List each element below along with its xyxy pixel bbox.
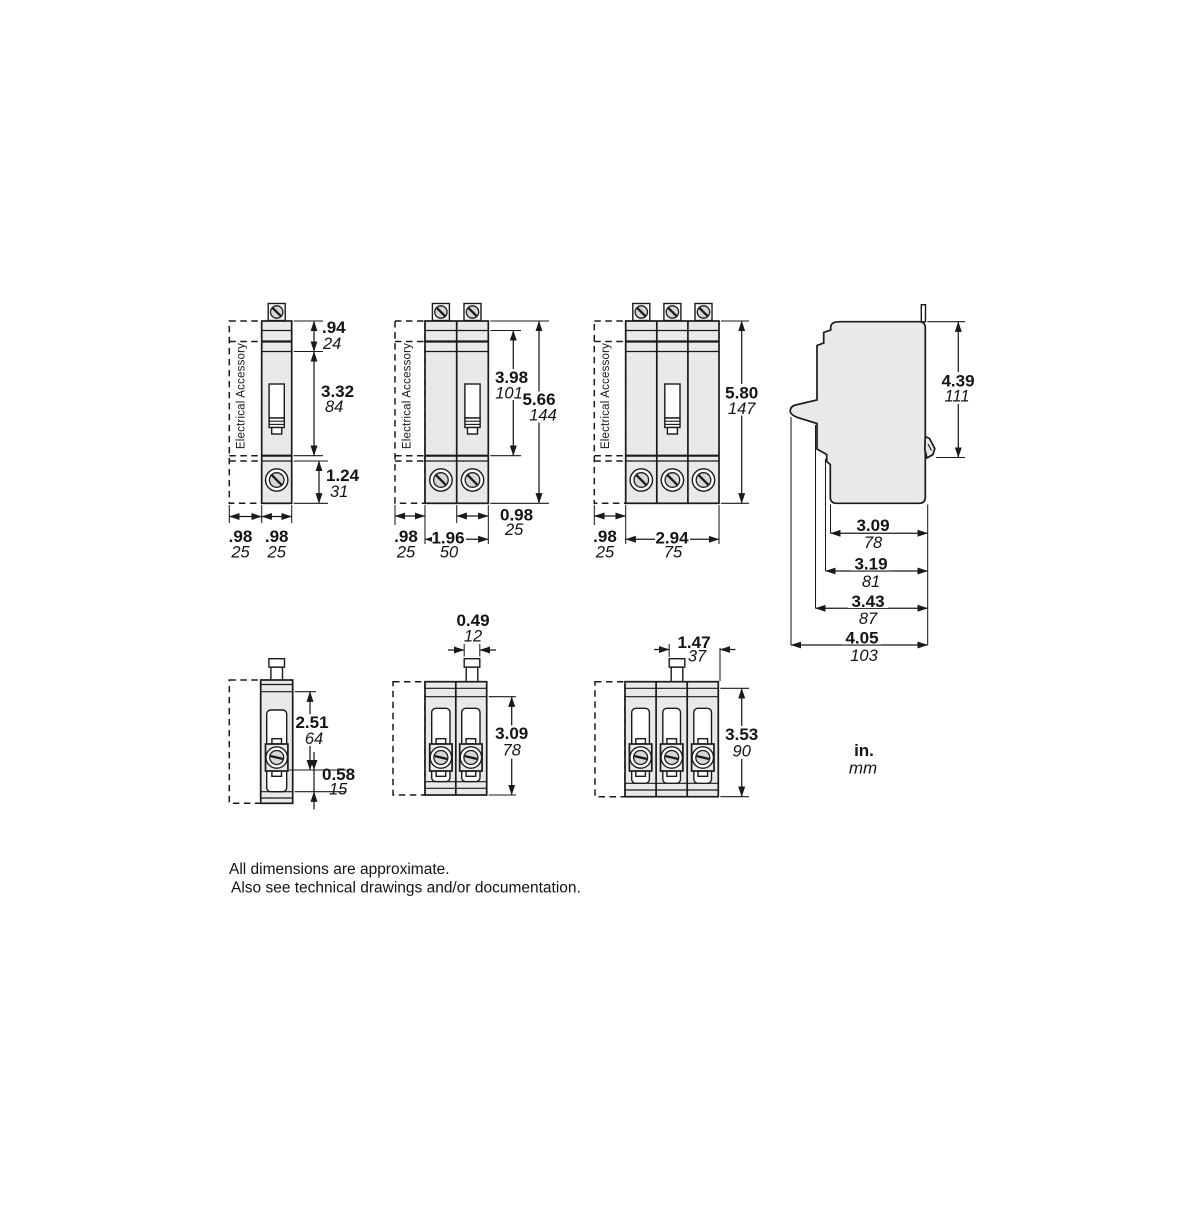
svg-text:75: 75	[664, 544, 683, 562]
side-view: 4.39 111 3.09 78 3.19 81 3.43 87 4.05 10…	[790, 305, 977, 665]
svg-text:25: 25	[267, 544, 287, 562]
svg-text:3.19: 3.19	[854, 555, 887, 574]
svg-text:15: 15	[329, 781, 348, 799]
svg-text:24: 24	[322, 335, 341, 353]
svg-text:78: 78	[864, 534, 883, 552]
dim-widths: 0.98 25 .98 25 1.96 50	[394, 505, 533, 562]
dim-handle-width: 1.47 37	[654, 633, 736, 681]
wire-lug	[629, 739, 651, 777]
dim-lug-height: 1.24 31	[294, 461, 360, 503]
svg-text:81: 81	[862, 573, 880, 591]
dim-total-height: 5.80 147	[721, 321, 761, 503]
terminal-screw	[268, 304, 285, 321]
breaker-dimension-drawing: Electrical Accessory .94 24 3.32 84 1.24	[0, 0, 1200, 1200]
units-mm: mm	[849, 759, 877, 778]
terminal-screw	[432, 304, 449, 321]
dim-widths: .98 25 2.94 75	[593, 505, 719, 562]
accessory-label: Electrical Accessory	[600, 343, 612, 449]
dim-body-height: 3.32 84	[294, 352, 354, 456]
svg-text:37: 37	[688, 648, 707, 666]
terminal-screw	[633, 304, 650, 321]
handle-stub	[464, 659, 480, 682]
trip-pin	[921, 305, 925, 322]
terminal-screw	[464, 304, 481, 321]
svg-text:25: 25	[230, 544, 250, 562]
lug-screw	[692, 469, 714, 491]
svg-text:84: 84	[325, 398, 343, 416]
dim-handle-width: 0.49 12	[448, 611, 496, 657]
wire-lug	[692, 739, 714, 777]
dim-widths: .98 25 .98 25	[229, 505, 292, 562]
lug-screw	[430, 469, 452, 491]
svg-text:50: 50	[440, 544, 459, 562]
terminal-screw	[664, 304, 681, 321]
top-view-1pole: 2.51 64 0.58 15	[229, 659, 355, 810]
dim-height: 4.39 111	[927, 322, 977, 458]
footnotes: All dimensions are approximate. Also see…	[229, 861, 581, 897]
svg-text:25: 25	[396, 544, 416, 562]
front-view-3pole: Electrical Accessory 5.80 147	[593, 304, 761, 562]
wire-lug	[661, 739, 683, 777]
dim-depth: 3.53 90	[720, 688, 761, 796]
svg-text:111: 111	[944, 388, 969, 406]
svg-text:4.05: 4.05	[845, 629, 878, 648]
lug-screw	[461, 469, 483, 491]
note-line-2: Also see technical drawings and/or docum…	[231, 880, 581, 897]
toggle-handle	[269, 384, 284, 434]
svg-text:31: 31	[330, 483, 348, 501]
diagram-canvas: Electrical Accessory .94 24 3.32 84 1.24	[0, 0, 1200, 1200]
svg-text:144: 144	[529, 407, 557, 425]
svg-text:25: 25	[504, 521, 524, 539]
svg-text:101: 101	[495, 385, 523, 403]
svg-text:3.53: 3.53	[725, 725, 758, 744]
svg-text:103: 103	[850, 647, 878, 665]
lug-screw	[630, 469, 652, 491]
wire-lug	[460, 739, 482, 777]
accessory-zone-outline	[595, 682, 625, 797]
front-view-2pole: Electrical Accessory 3.98 101 5.66 144	[394, 304, 558, 562]
dim-body-depth: 2.51 64	[289, 692, 346, 770]
svg-text:25: 25	[595, 544, 615, 562]
svg-text:147: 147	[728, 400, 756, 418]
wire-lug	[430, 739, 452, 777]
svg-text:12: 12	[464, 628, 482, 646]
note-line-1: All dimensions are approximate.	[229, 861, 450, 878]
toggle-handle	[665, 384, 680, 434]
accessory-zone-outline	[393, 682, 425, 795]
front-view-1pole: Electrical Accessory .94 24 3.32 84 1.24	[229, 304, 360, 562]
dim-total-height: 5.66 144	[490, 321, 558, 503]
terminal-screw	[695, 304, 712, 321]
handle-stub	[669, 659, 685, 682]
dim-depth: 3.09 78	[489, 697, 531, 795]
top-view-2pole: 0.49 12 3.09 78	[393, 611, 531, 795]
top-view-3pole: 1.47 37 3.53 90	[595, 633, 761, 797]
svg-text:3.09: 3.09	[856, 516, 889, 535]
accessory-label: Electrical Accessory	[236, 343, 248, 449]
dim-terminal-height: .94 24	[294, 318, 346, 353]
svg-text:87: 87	[859, 610, 878, 628]
svg-text:3.09: 3.09	[495, 724, 528, 743]
wire-lug	[266, 739, 288, 777]
svg-text:64: 64	[305, 730, 323, 748]
svg-text:90: 90	[733, 743, 752, 761]
accessory-label: Electrical Accessory	[402, 343, 414, 449]
accessory-zone-outline	[229, 680, 260, 803]
handle-stub	[269, 659, 285, 682]
toggle-handle	[465, 384, 480, 434]
side-body	[790, 322, 925, 504]
dim-lug-depth: 0.58 15	[295, 752, 355, 810]
svg-text:78: 78	[503, 742, 522, 760]
lug-screw	[661, 469, 683, 491]
lug-screw	[266, 469, 288, 491]
svg-text:3.43: 3.43	[851, 592, 884, 611]
units-legend: in. mm	[849, 741, 877, 778]
units-inches: in.	[854, 741, 874, 760]
